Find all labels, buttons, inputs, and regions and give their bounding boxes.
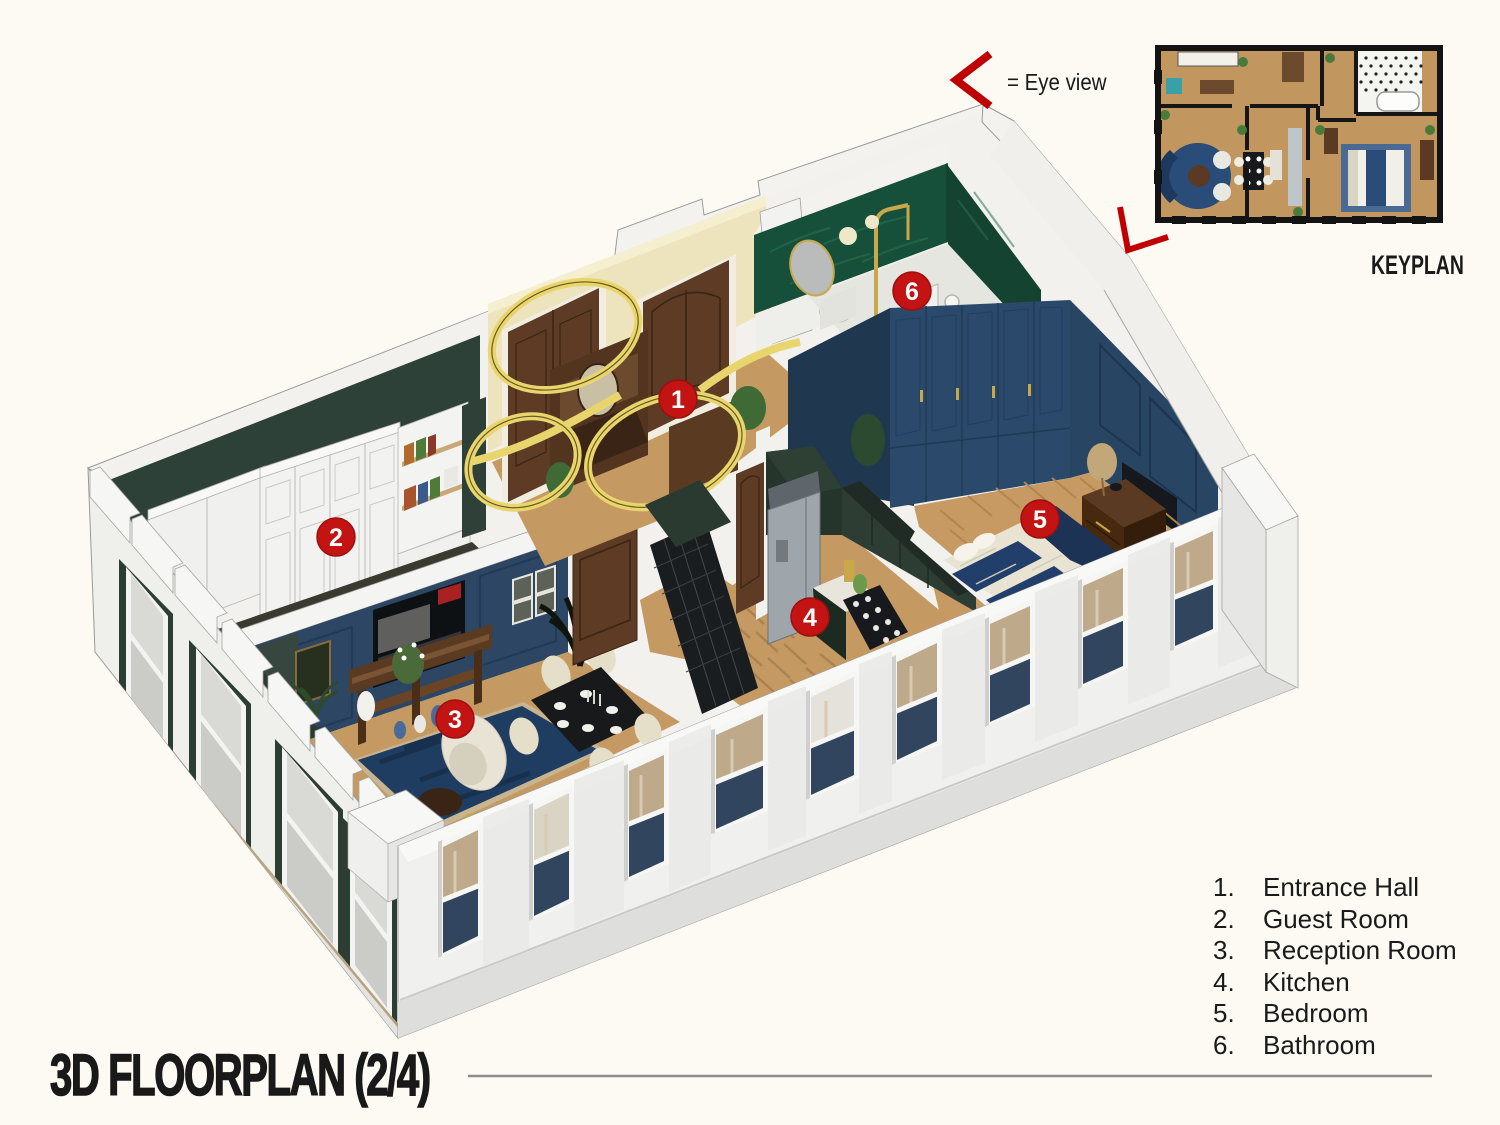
svg-text:6: 6: [905, 278, 919, 306]
svg-text:= Eye view: = Eye view: [1007, 69, 1107, 95]
svg-text:3D FLOORPLAN (2/4): 3D FLOORPLAN (2/4): [50, 1043, 430, 1108]
svg-text:3.: 3.: [1213, 935, 1235, 965]
svg-text:3: 3: [448, 706, 462, 734]
svg-text:KEYPLAN: KEYPLAN: [1371, 250, 1464, 280]
svg-text:2: 2: [329, 524, 343, 552]
svg-text:Entrance Hall: Entrance Hall: [1263, 872, 1419, 902]
svg-text:1: 1: [671, 386, 685, 414]
svg-text:Reception Room: Reception Room: [1263, 935, 1457, 965]
svg-text:Bedroom: Bedroom: [1263, 998, 1369, 1028]
svg-text:5.: 5.: [1213, 998, 1235, 1028]
svg-text:Bathroom: Bathroom: [1263, 1030, 1376, 1060]
svg-text:4: 4: [803, 604, 817, 632]
svg-text:4.: 4.: [1213, 967, 1235, 997]
svg-text:1.: 1.: [1213, 872, 1235, 902]
svg-text:Guest Room: Guest Room: [1263, 904, 1409, 934]
svg-text:2.: 2.: [1213, 904, 1235, 934]
svg-text:5: 5: [1033, 506, 1047, 534]
svg-text:6.: 6.: [1213, 1030, 1235, 1060]
svg-text:Kitchen: Kitchen: [1263, 967, 1350, 997]
